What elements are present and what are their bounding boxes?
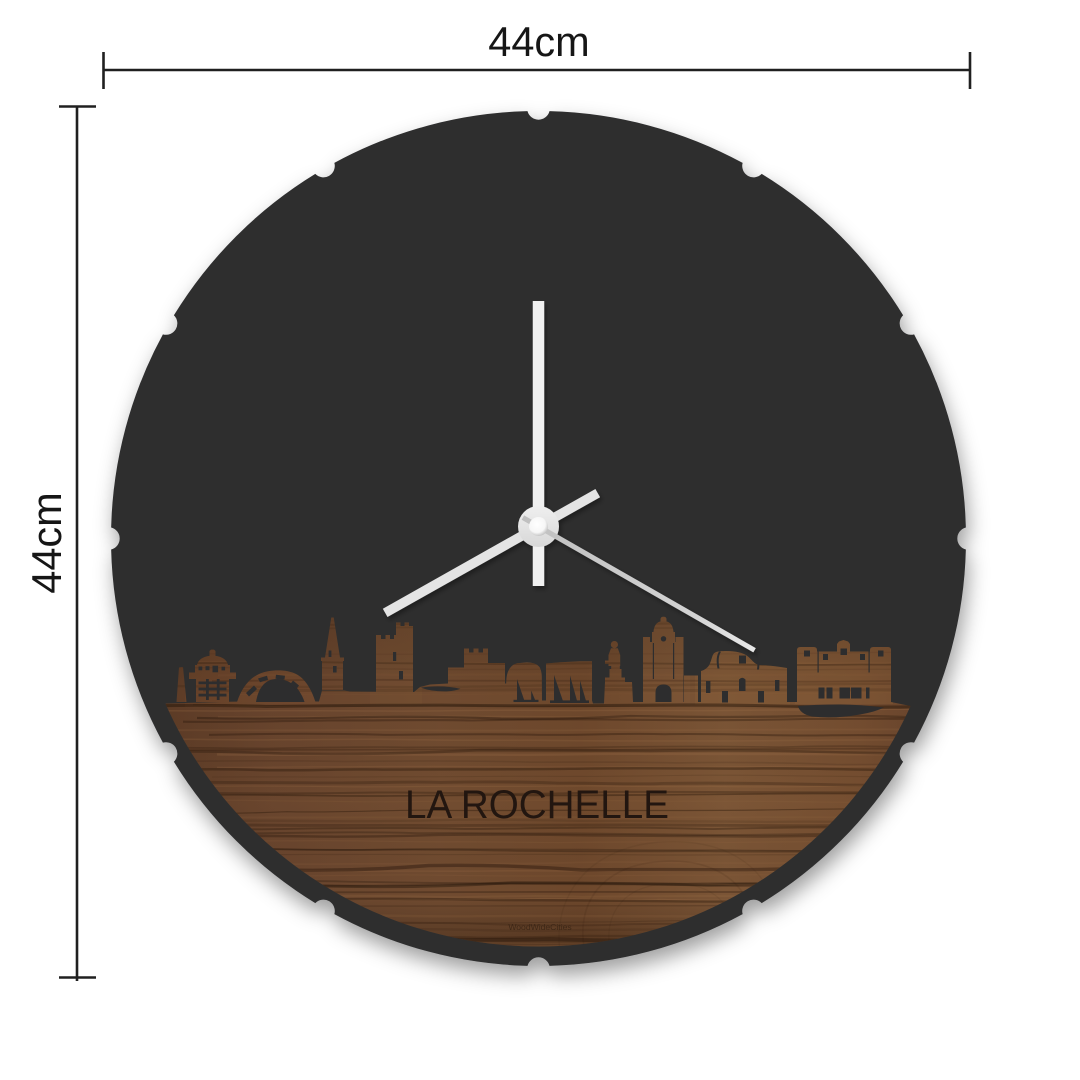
svg-text:WoodWideCities: WoodWideCities bbox=[508, 922, 571, 932]
svg-text:LA ROCHELLE: LA ROCHELLE bbox=[405, 783, 669, 827]
svg-text:44cm: 44cm bbox=[488, 18, 589, 65]
svg-text:44cm: 44cm bbox=[23, 492, 70, 593]
